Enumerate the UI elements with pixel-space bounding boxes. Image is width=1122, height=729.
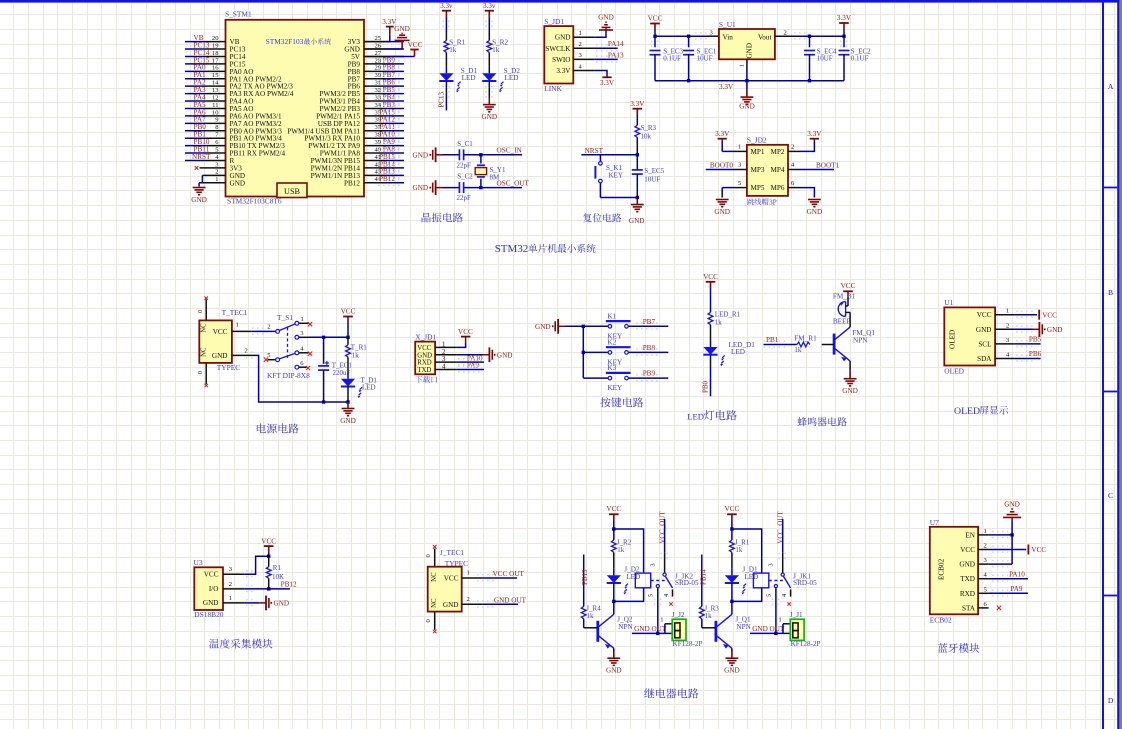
svg-text:MP3: MP3	[751, 166, 765, 174]
svg-text:SRD-05: SRD-05	[675, 579, 699, 587]
svg-text:LINK: LINK	[544, 84, 562, 93]
svg-text:PB6: PB6	[1029, 350, 1042, 358]
svg-text:J_J2: J_J2	[672, 611, 685, 619]
svg-text:FM_B1: FM_B1	[833, 293, 856, 301]
svg-text:GND OUT: GND OUT	[494, 596, 527, 604]
svg-text:U1: U1	[944, 298, 953, 307]
svg-text:K2: K2	[607, 338, 616, 346]
svg-text:VCC: VCC	[1042, 311, 1057, 319]
svg-text:KF128-2P: KF128-2P	[673, 640, 703, 648]
svg-text:3.3v: 3.3v	[440, 2, 453, 10]
svg-text:TYPEC: TYPEC	[217, 363, 240, 372]
svg-text:PB12: PB12	[281, 581, 297, 589]
svg-text:3.3v: 3.3v	[483, 2, 496, 10]
svg-text:A: A	[1108, 82, 1114, 91]
svg-text:T_TEC1: T_TEC1	[222, 308, 248, 317]
svg-text:GND: GND	[535, 323, 551, 331]
svg-text:1: 1	[1006, 308, 1009, 315]
svg-text:GND: GND	[417, 352, 432, 359]
svg-text:STM32: STM32	[495, 243, 529, 255]
svg-text:GND: GND	[1047, 326, 1063, 334]
svg-text:VCC: VCC	[417, 345, 431, 352]
svg-text:PB11 RX PWM2/4: PB11 RX PWM2/4	[230, 150, 286, 158]
svg-text:J_J1: J_J1	[790, 611, 803, 619]
svg-text:NPN: NPN	[853, 337, 868, 345]
svg-text:PA9: PA9	[1010, 585, 1023, 593]
svg-text:1k: 1k	[715, 318, 723, 326]
svg-text:10UF: 10UF	[697, 55, 713, 63]
svg-text:GND: GND	[482, 113, 498, 121]
svg-text:VCC: VCC	[960, 546, 975, 554]
svg-text:3.3V: 3.3V	[556, 67, 571, 75]
svg-text:PB12: PB12	[379, 175, 395, 183]
svg-text:SWCLK: SWCLK	[545, 45, 571, 53]
svg-text:SDA: SDA	[977, 355, 992, 363]
svg-text:PB14: PB14	[699, 569, 707, 585]
svg-text:GND: GND	[598, 14, 614, 22]
svg-text:KEY: KEY	[607, 384, 623, 392]
svg-text:MP2: MP2	[771, 148, 785, 156]
svg-text:1: 1	[579, 30, 582, 37]
svg-text:20: 20	[212, 35, 219, 42]
svg-text:1: 1	[660, 617, 663, 624]
svg-text:3.3V: 3.3V	[719, 83, 734, 91]
svg-text:MP5: MP5	[751, 184, 765, 192]
svg-text:5: 5	[648, 594, 655, 597]
svg-text:PB12: PB12	[344, 179, 360, 187]
svg-text:GND: GND	[724, 667, 740, 675]
svg-text:K1: K1	[607, 312, 616, 320]
svg-text:GND: GND	[413, 184, 429, 192]
svg-text:PB1: PB1	[766, 336, 779, 344]
svg-text:22pF: 22pF	[457, 162, 472, 170]
svg-text:J_TEC1: J_TEC1	[440, 548, 465, 557]
svg-text:RXD: RXD	[960, 590, 975, 598]
svg-text:OLED: OLED	[954, 406, 980, 417]
svg-text:GND: GND	[212, 352, 228, 360]
svg-text:32: 32	[375, 87, 382, 94]
svg-text:GND: GND	[959, 561, 975, 569]
svg-text:VCC: VCC	[341, 308, 356, 316]
svg-text:VCC: VCC	[725, 505, 740, 513]
svg-text:PB5: PB5	[1029, 336, 1042, 344]
svg-text:PB9: PB9	[643, 370, 656, 378]
svg-text:22pF: 22pF	[457, 194, 472, 202]
svg-text:GND: GND	[842, 387, 858, 395]
svg-text:S_JD2: S_JD2	[747, 135, 767, 144]
svg-text:2: 2	[1006, 322, 1009, 329]
svg-text:1: 1	[738, 144, 741, 151]
svg-text:SWIO: SWIO	[552, 56, 570, 64]
svg-text:KEY: KEY	[609, 172, 623, 180]
svg-text:31: 31	[375, 80, 382, 87]
svg-text:1: 1	[236, 322, 239, 329]
svg-text:LED: LED	[626, 573, 640, 581]
svg-text:GND: GND	[606, 667, 622, 675]
svg-text:2: 2	[229, 581, 232, 588]
svg-text:PA14: PA14	[608, 40, 624, 48]
svg-text:VCC: VCC	[408, 41, 423, 49]
svg-text:1k: 1k	[587, 612, 595, 620]
svg-text:TXD: TXD	[960, 575, 975, 583]
svg-text:S_STM1: S_STM1	[225, 10, 252, 19]
svg-text:GND: GND	[340, 417, 356, 425]
svg-text:5: 5	[766, 594, 773, 597]
svg-text:NC: NC	[431, 598, 438, 608]
svg-text:14: 14	[212, 80, 219, 87]
svg-text:VCC: VCC	[606, 505, 621, 513]
svg-text:BEEP: BEEP	[833, 317, 851, 325]
svg-text:STM32F103C8T6: STM32F103C8T6	[227, 197, 282, 206]
svg-text:K3: K3	[607, 364, 616, 372]
svg-text:PB7: PB7	[643, 318, 656, 326]
svg-text:2: 2	[791, 144, 794, 151]
svg-text:2: 2	[467, 596, 470, 603]
svg-text:NC: NC	[431, 572, 438, 582]
svg-text:VCC: VCC	[458, 328, 473, 336]
svg-text:I/O: I/O	[209, 585, 219, 593]
svg-text:BOOT0: BOOT0	[710, 161, 734, 169]
svg-text:RXD: RXD	[417, 360, 431, 367]
svg-text:10: 10	[212, 109, 219, 116]
svg-text:PC13: PC13	[437, 91, 445, 107]
svg-text:S_JD1: S_JD1	[544, 17, 564, 26]
svg-text:ECB02: ECB02	[938, 558, 946, 580]
svg-text:2: 2	[984, 543, 987, 550]
svg-text:KF128-2P: KF128-2P	[791, 640, 821, 648]
svg-text:GND: GND	[745, 43, 753, 59]
svg-text:NRST: NRST	[192, 153, 211, 161]
svg-text:1: 1	[739, 64, 746, 67]
svg-text:OLED: OLED	[949, 330, 957, 349]
svg-text:GND: GND	[394, 25, 410, 33]
svg-text:1k: 1k	[617, 546, 625, 554]
svg-text:GND: GND	[191, 196, 207, 204]
svg-text:GND: GND	[413, 151, 429, 159]
svg-text:TXD: TXD	[417, 367, 431, 374]
svg-text:NC: NC	[200, 323, 207, 333]
svg-text:VCC: VCC	[703, 273, 718, 281]
svg-text:VCC: VCC	[648, 14, 663, 22]
svg-text:1k: 1k	[735, 546, 743, 554]
svg-text:10UF: 10UF	[644, 176, 660, 184]
svg-text:VCC: VCC	[841, 282, 856, 290]
svg-text:OLED: OLED	[944, 367, 964, 376]
svg-text:LED: LED	[687, 412, 704, 422]
svg-text:18: 18	[212, 50, 219, 57]
svg-text:R1: R1	[273, 564, 282, 572]
svg-text:VCC: VCC	[213, 328, 228, 336]
svg-text:Vout: Vout	[758, 34, 771, 42]
svg-text:MP4: MP4	[771, 166, 785, 174]
svg-text:S_C2: S_C2	[457, 173, 473, 181]
svg-text:PB0: PB0	[701, 380, 709, 393]
svg-text:1k: 1k	[352, 351, 360, 359]
svg-text:EN: EN	[965, 531, 975, 539]
svg-text:2: 2	[579, 41, 582, 48]
svg-text:GND: GND	[274, 600, 290, 608]
svg-text:GND: GND	[629, 217, 645, 225]
svg-text:15: 15	[212, 72, 219, 79]
svg-text:1: 1	[301, 316, 304, 323]
svg-text:T_S1: T_S1	[277, 313, 293, 322]
svg-text:BOOT1: BOOT1	[816, 161, 840, 169]
svg-text:2: 2	[784, 30, 787, 37]
svg-text:U3: U3	[194, 558, 203, 567]
svg-text:Vin: Vin	[723, 34, 734, 42]
svg-text:VCC OUT: VCC OUT	[493, 570, 525, 578]
svg-text:NPN: NPN	[618, 623, 633, 631]
svg-text:X_JD1: X_JD1	[415, 333, 436, 342]
svg-text:DS18B20: DS18B20	[194, 610, 223, 619]
svg-text:1: 1	[984, 528, 987, 535]
svg-text:STA: STA	[962, 604, 976, 612]
svg-text:MP1: MP1	[751, 148, 765, 156]
svg-text:S_U1: S_U1	[719, 20, 736, 29]
svg-text:VCC: VCC	[204, 571, 219, 579]
svg-text:LED: LED	[362, 384, 376, 392]
svg-text:1: 1	[467, 570, 470, 577]
svg-text:PB8: PB8	[643, 344, 656, 352]
svg-text:GND: GND	[1004, 501, 1020, 509]
svg-text:SRD-05: SRD-05	[793, 579, 817, 587]
svg-text:10k: 10k	[641, 133, 652, 141]
svg-text:GND: GND	[443, 601, 459, 609]
svg-text:LED: LED	[744, 573, 758, 581]
svg-text:NRST: NRST	[585, 147, 604, 155]
svg-text:3: 3	[442, 356, 446, 363]
svg-text:GND: GND	[230, 179, 246, 187]
svg-text:OSC_IN: OSC_IN	[497, 147, 523, 155]
svg-text:3.3V: 3.3V	[630, 100, 645, 108]
svg-text:T_R1: T_R1	[351, 344, 367, 352]
svg-text:GND: GND	[976, 326, 992, 334]
svg-text:NC: NC	[200, 347, 207, 357]
svg-text:3: 3	[768, 563, 775, 566]
svg-text:VCC: VCC	[444, 575, 459, 583]
svg-text:2: 2	[267, 323, 270, 330]
svg-text:19: 19	[212, 42, 219, 49]
svg-text:S_EC5: S_EC5	[644, 167, 664, 175]
svg-text:OSC_OUT: OSC_OUT	[497, 179, 530, 187]
svg-text:2: 2	[245, 347, 248, 354]
svg-text:0.1UF: 0.1UF	[663, 55, 681, 63]
svg-text:1k: 1k	[794, 346, 802, 354]
svg-text:U7: U7	[930, 518, 939, 527]
svg-text:PB13: PB13	[581, 569, 589, 585]
svg-text:1k: 1k	[449, 46, 457, 54]
svg-text:16: 16	[212, 65, 219, 72]
svg-text:S_R3: S_R3	[641, 124, 657, 132]
svg-text:D: D	[1108, 696, 1114, 705]
svg-text:12: 12	[212, 94, 219, 101]
svg-text:4: 4	[442, 364, 446, 371]
svg-text:GND: GND	[739, 103, 755, 111]
svg-text:KFT DIP-8X8: KFT DIP-8X8	[267, 371, 310, 380]
svg-text:GND: GND	[203, 599, 219, 607]
svg-text:LED: LED	[505, 74, 519, 82]
svg-text:GND OUT: GND OUT	[752, 625, 785, 633]
svg-text:NPN: NPN	[736, 623, 751, 631]
svg-text:VCC: VCC	[1031, 546, 1046, 554]
svg-text:GND: GND	[497, 351, 513, 359]
svg-text:3.3V: 3.3V	[715, 130, 730, 138]
svg-text:3P: 3P	[769, 198, 777, 207]
svg-text:13: 13	[212, 87, 219, 94]
svg-text:B: B	[1108, 288, 1113, 297]
svg-text:1k: 1k	[705, 612, 713, 620]
svg-text:10UF: 10UF	[817, 55, 833, 63]
svg-text:MP6: MP6	[771, 184, 785, 192]
svg-text:LED_R1: LED_R1	[715, 310, 741, 318]
svg-text:PA10: PA10	[1009, 570, 1025, 578]
svg-text:SCL: SCL	[978, 340, 991, 348]
svg-text:USB: USB	[284, 187, 300, 196]
svg-text:LED: LED	[731, 348, 745, 356]
svg-text:4: 4	[781, 594, 788, 597]
svg-text:1: 1	[778, 617, 781, 624]
svg-text:PA13: PA13	[608, 51, 624, 59]
svg-text:2: 2	[442, 349, 446, 356]
svg-text:C: C	[1108, 491, 1113, 500]
svg-text:LED: LED	[462, 74, 476, 82]
svg-text:GND OUT: GND OUT	[634, 625, 667, 633]
svg-text:STM32F103: STM32F103	[266, 37, 304, 46]
svg-text:1: 1	[442, 342, 445, 349]
svg-text:GND: GND	[807, 208, 823, 216]
svg-text:3.3V: 3.3V	[807, 130, 822, 138]
svg-text:3: 3	[650, 563, 657, 566]
svg-text:GND: GND	[555, 34, 571, 42]
svg-text:0.1UF: 0.1UF	[851, 55, 869, 63]
svg-text:11: 11	[212, 102, 218, 109]
svg-text:3.3V: 3.3V	[837, 14, 852, 22]
svg-text:4: 4	[663, 594, 670, 597]
svg-text:VCC: VCC	[977, 311, 992, 319]
svg-text:17: 17	[212, 57, 219, 64]
svg-text:1k: 1k	[492, 46, 500, 54]
svg-text:ECB02: ECB02	[930, 615, 952, 624]
svg-text:FM_R1: FM_R1	[794, 334, 817, 342]
svg-text:3.3V: 3.3V	[600, 79, 615, 87]
svg-text:VCC: VCC	[261, 538, 276, 546]
svg-text:GND: GND	[714, 208, 730, 216]
svg-text:S_C1: S_C1	[457, 140, 473, 148]
svg-text:1: 1	[229, 595, 232, 602]
